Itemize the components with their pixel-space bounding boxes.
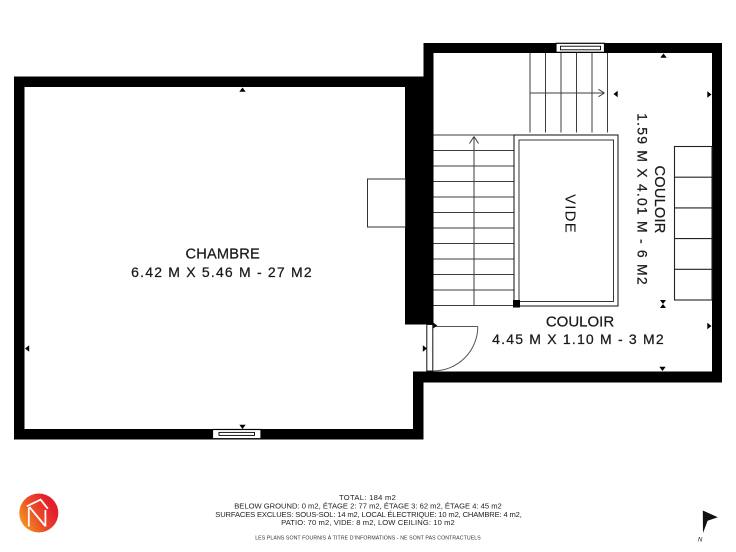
svg-text:4.45 M X 1.10 M - 3 M2: 4.45 M X 1.10 M - 3 M2: [492, 331, 665, 347]
svg-text:COULOIR: COULOIR: [651, 166, 667, 234]
svg-text:VIDE: VIDE: [562, 194, 579, 234]
svg-text:CHAMBRE: CHAMBRE: [186, 246, 260, 262]
svg-text:6.42 M X 5.46 M - 27 M2: 6.42 M X 5.46 M - 27 M2: [131, 264, 313, 280]
svg-text:PATIO: 70 m2, VIDE: 8 m2, LOW: PATIO: 70 m2, VIDE: 8 m2, LOW CEILING: 1…: [281, 518, 455, 527]
svg-text:N: N: [698, 538, 703, 544]
svg-text:COULOIR: COULOIR: [546, 313, 615, 330]
svg-text:LES PLANS SONT FOURNIS À TITRE: LES PLANS SONT FOURNIS À TITRE D'INFORMA…: [255, 534, 481, 541]
svg-text:1.59 M X 4.01 M - 6 M2: 1.59 M X 4.01 M - 6 M2: [635, 113, 651, 286]
